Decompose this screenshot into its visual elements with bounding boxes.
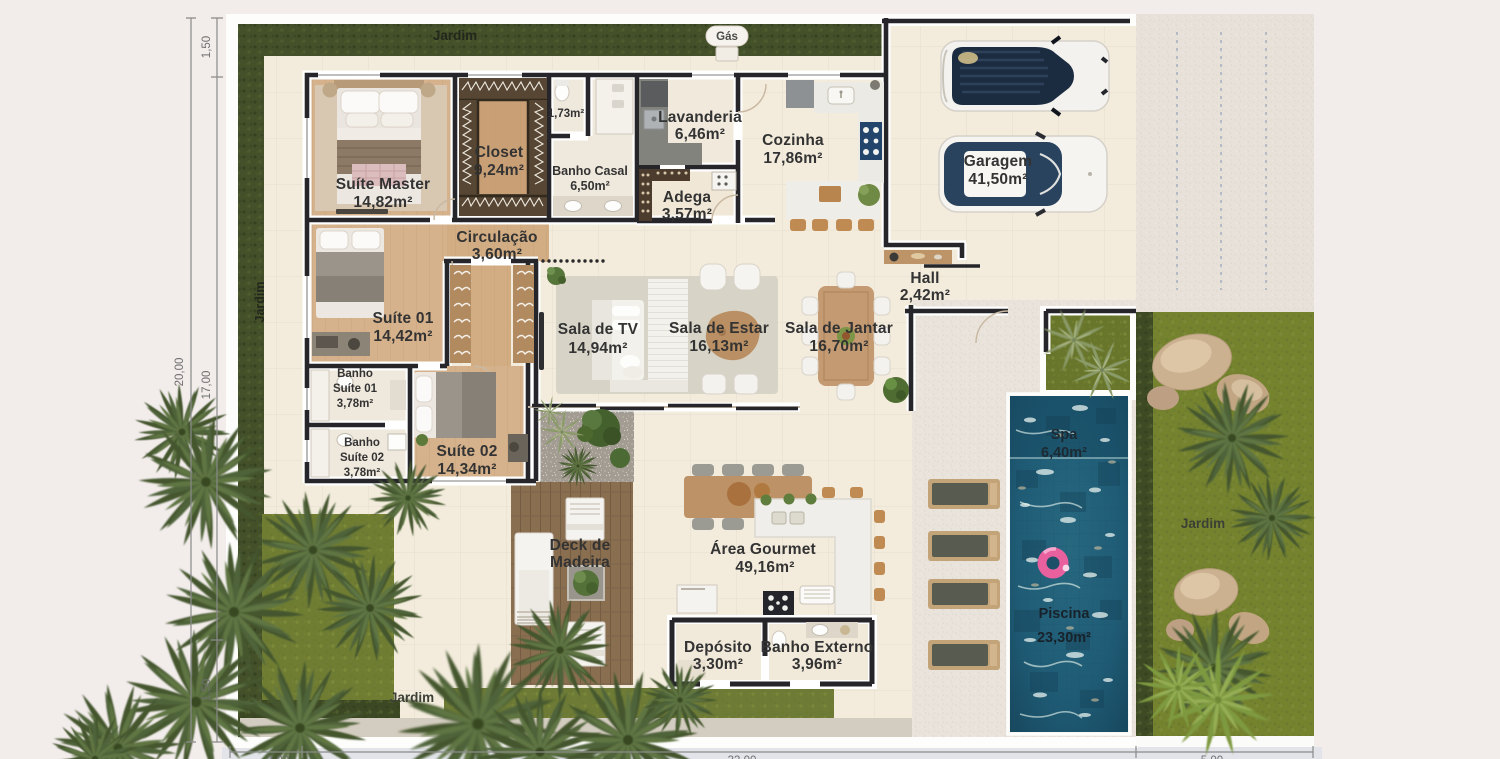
svg-text:Suíte 02: Suíte 02 bbox=[340, 452, 384, 464]
svg-text:Closet: Closet bbox=[475, 144, 524, 161]
svg-text:Sala de Jantar: Sala de Jantar bbox=[785, 320, 893, 337]
svg-text:Cozinha: Cozinha bbox=[762, 132, 824, 149]
svg-text:16,70m²: 16,70m² bbox=[809, 338, 868, 355]
svg-text:14,82m²: 14,82m² bbox=[353, 194, 412, 211]
svg-text:41,50m²: 41,50m² bbox=[968, 171, 1027, 188]
svg-text:14,42m²: 14,42m² bbox=[373, 328, 432, 345]
svg-text:Suíte 02: Suíte 02 bbox=[436, 443, 497, 460]
svg-text:Sala de TV: Sala de TV bbox=[558, 321, 639, 338]
svg-text:3,96m²: 3,96m² bbox=[792, 656, 842, 673]
svg-text:Madeira: Madeira bbox=[550, 554, 610, 571]
svg-text:Banho Casal: Banho Casal bbox=[552, 164, 628, 178]
svg-text:3,00: 3,00 bbox=[267, 755, 289, 759]
svg-text:Garagem: Garagem bbox=[964, 153, 1033, 170]
svg-text:16,13m²: 16,13m² bbox=[689, 338, 748, 355]
svg-text:2,42m²: 2,42m² bbox=[900, 287, 950, 304]
svg-text:Lavanderia: Lavanderia bbox=[658, 109, 742, 126]
svg-text:3,78m²: 3,78m² bbox=[344, 467, 381, 479]
svg-text:Jardim: Jardim bbox=[253, 282, 267, 323]
svg-text:Gás: Gás bbox=[716, 31, 738, 43]
svg-text:1,50: 1,50 bbox=[201, 679, 213, 701]
svg-text:3,30m²: 3,30m² bbox=[693, 656, 743, 673]
svg-text:Banho Externo: Banho Externo bbox=[761, 639, 874, 656]
svg-text:Spa: Spa bbox=[1051, 427, 1079, 443]
svg-text:Jardim: Jardim bbox=[433, 28, 477, 43]
svg-text:Deck de: Deck de bbox=[550, 537, 611, 554]
svg-text:Jardim: Jardim bbox=[390, 690, 434, 705]
svg-text:Banho: Banho bbox=[337, 368, 373, 380]
svg-text:1,73m²: 1,73m² bbox=[548, 108, 585, 120]
svg-text:23,30m²: 23,30m² bbox=[1037, 630, 1091, 646]
svg-text:1,50: 1,50 bbox=[201, 36, 213, 58]
svg-text:Suíte 01: Suíte 01 bbox=[372, 310, 433, 327]
svg-text:Depósito: Depósito bbox=[684, 639, 752, 656]
svg-text:6,50m²: 6,50m² bbox=[570, 179, 610, 193]
svg-text:49,16m²: 49,16m² bbox=[735, 559, 794, 576]
svg-text:Jardim: Jardim bbox=[1181, 516, 1225, 531]
svg-text:Adega: Adega bbox=[663, 189, 712, 206]
svg-text:14,94m²: 14,94m² bbox=[568, 340, 627, 357]
svg-text:17,86m²: 17,86m² bbox=[763, 150, 822, 167]
svg-text:20,00: 20,00 bbox=[174, 358, 186, 387]
svg-text:5,00: 5,00 bbox=[1201, 755, 1223, 759]
svg-text:Suíte Master: Suíte Master bbox=[336, 176, 431, 193]
svg-text:3,60m²: 3,60m² bbox=[472, 246, 522, 263]
svg-text:Sala de Estar: Sala de Estar bbox=[669, 320, 769, 337]
svg-text:Piscina: Piscina bbox=[1039, 606, 1091, 622]
svg-text:14,34m²: 14,34m² bbox=[437, 461, 496, 478]
svg-text:Banho: Banho bbox=[344, 437, 380, 449]
svg-text:6,40m²: 6,40m² bbox=[1041, 445, 1087, 461]
svg-text:9,24m²: 9,24m² bbox=[474, 162, 524, 179]
svg-text:Área Gourmet: Área Gourmet bbox=[710, 541, 816, 558]
svg-text:6,46m²: 6,46m² bbox=[675, 126, 725, 143]
svg-text:33,00: 33,00 bbox=[728, 755, 757, 759]
svg-text:Suíte 01: Suíte 01 bbox=[333, 383, 378, 395]
svg-text:Circulação: Circulação bbox=[456, 229, 537, 246]
svg-text:3,57m²: 3,57m² bbox=[662, 206, 712, 223]
svg-text:17,00: 17,00 bbox=[201, 371, 213, 400]
svg-text:Hall: Hall bbox=[910, 270, 939, 287]
svg-text:3,78m²: 3,78m² bbox=[337, 398, 374, 410]
